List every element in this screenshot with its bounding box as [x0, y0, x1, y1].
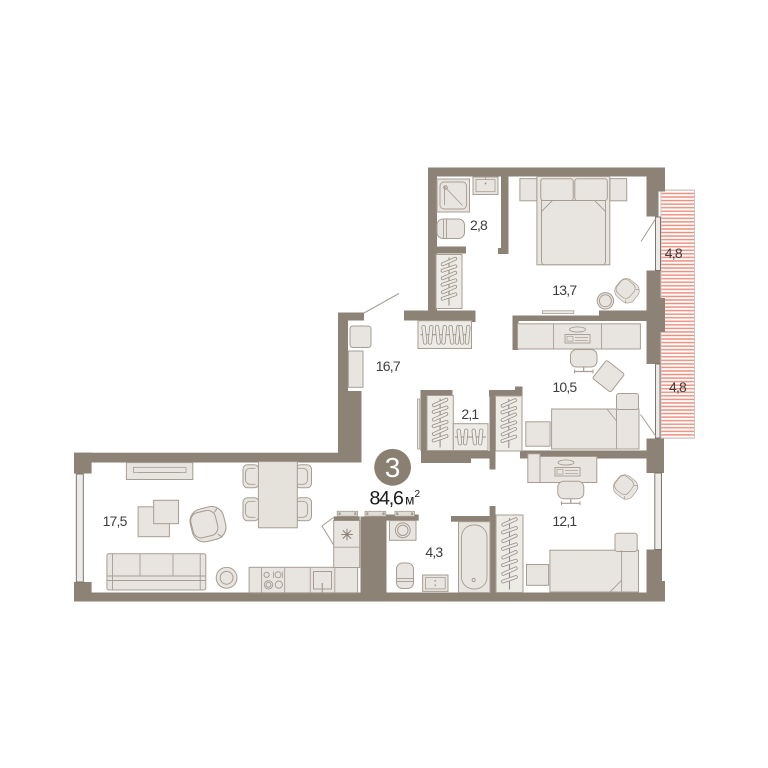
svg-text:4,3: 4,3: [425, 544, 443, 560]
svg-text:2,8: 2,8: [470, 217, 488, 233]
svg-text:2,1: 2,1: [461, 406, 479, 422]
svg-text:4,8: 4,8: [669, 379, 687, 395]
svg-text:10,5: 10,5: [552, 379, 577, 395]
svg-text:17,5: 17,5: [103, 513, 128, 529]
svg-text:3: 3: [385, 452, 401, 483]
svg-text:16,7: 16,7: [376, 358, 401, 374]
svg-text:12,1: 12,1: [552, 513, 577, 529]
svg-text:13,7: 13,7: [552, 282, 577, 298]
svg-text:4,8: 4,8: [665, 245, 683, 261]
